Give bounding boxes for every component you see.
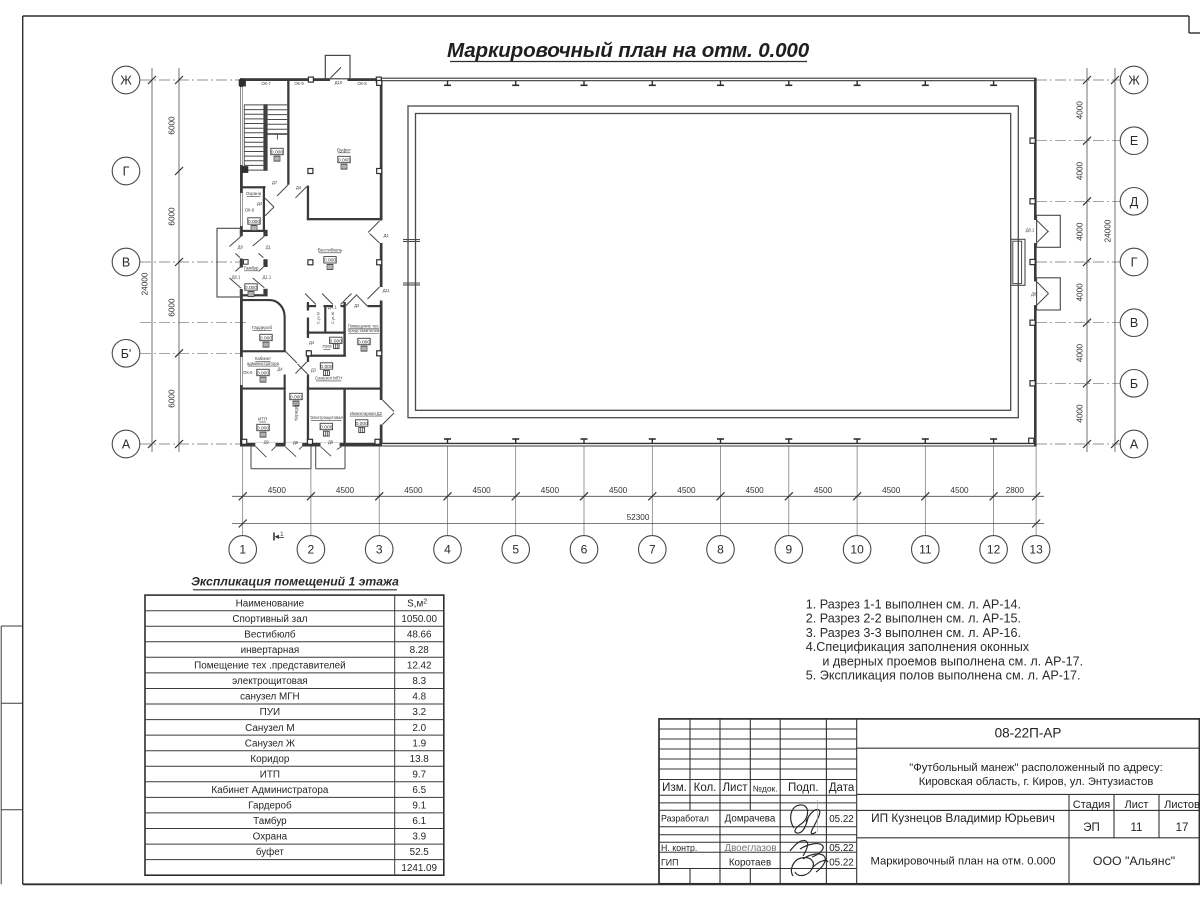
svg-text:ИТП: ИТП <box>260 769 280 780</box>
svg-text:Помещение тех .представителей: Помещение тех .представителей <box>194 661 346 672</box>
svg-text:4500: 4500 <box>472 486 491 495</box>
svg-text:Изм.: Изм. <box>662 782 687 794</box>
svg-text:Д8.1: Д8.1 <box>1026 228 1035 233</box>
svg-text:0.000: 0.000 <box>271 149 284 155</box>
svg-text:ОК-9: ОК-9 <box>294 81 304 86</box>
svg-text:0.000: 0.000 <box>324 258 337 264</box>
svg-text:Охрана: Охрана <box>253 832 288 843</box>
svg-text:Ж: Ж <box>120 74 132 88</box>
svg-text:Гардероб: Гардероб <box>252 325 273 330</box>
svg-text:4.8: 4.8 <box>412 692 426 703</box>
svg-text:1: 1 <box>239 543 246 557</box>
svg-text:Е: Е <box>1130 134 1138 148</box>
svg-text:Б: Б <box>1130 377 1138 391</box>
svg-text:4500: 4500 <box>745 486 764 495</box>
svg-text:Тамбур: Тамбур <box>244 266 259 271</box>
svg-text:ОК-6: ОК-6 <box>243 370 253 375</box>
svg-text:Спортивный зал: Спортивный зал <box>232 614 307 625</box>
svg-text:Инвентарная Д2: Инвентарная Д2 <box>350 411 383 416</box>
svg-text:Д4: Д4 <box>257 201 263 206</box>
svg-text:Д: Д <box>1130 195 1139 209</box>
svg-text:Д1: Д1 <box>384 233 390 238</box>
svg-text:4.Спецификация заполнения окон: 4.Спецификация заполнения оконных <box>806 640 1030 654</box>
svg-text:12: 12 <box>987 543 1001 557</box>
svg-text:Охрана: Охрана <box>246 191 262 196</box>
svg-text:Коротаев: Коротаев <box>729 857 771 868</box>
svg-text:ОК-6: ОК-6 <box>245 207 255 212</box>
svg-text:6.5: 6.5 <box>412 785 426 796</box>
svg-text:Д7: Д7 <box>272 180 278 185</box>
svg-text:Б': Б' <box>121 347 132 361</box>
svg-text:4500: 4500 <box>677 486 696 495</box>
svg-text:0.000: 0.000 <box>245 285 258 291</box>
svg-text:администратора: администратора <box>247 361 280 366</box>
svg-text:Д8: Д8 <box>238 245 244 250</box>
svg-text:№док.: №док. <box>753 784 778 794</box>
svg-text:4500: 4500 <box>541 486 560 495</box>
svg-text:С.уз М: С.уз М <box>316 312 321 324</box>
svg-text:9.7: 9.7 <box>412 769 426 780</box>
svg-text:Д4: Д4 <box>296 185 302 190</box>
svg-text:Д1.1: Д1.1 <box>263 274 272 279</box>
svg-text:1. Разрез 1-1 выполнен см. л.: 1. Разрез 1-1 выполнен см. л. АР-14. <box>806 597 1021 611</box>
svg-text:1241.09: 1241.09 <box>401 863 437 874</box>
svg-text:4500: 4500 <box>882 486 901 495</box>
svg-text:2.0: 2.0 <box>412 723 426 734</box>
svg-text:8.28: 8.28 <box>410 645 430 656</box>
svg-text:Д3: Д3 <box>311 368 317 373</box>
svg-text:0.000: 0.000 <box>257 370 270 376</box>
svg-text:Гардероб: Гардероб <box>248 801 292 812</box>
svg-text:Д4.1: Д4.1 <box>328 305 337 310</box>
svg-text:представителей: представителей <box>348 328 380 333</box>
svg-text:3.2: 3.2 <box>412 707 426 718</box>
svg-text:48.66: 48.66 <box>407 629 432 640</box>
svg-text:электрощитовая: электрощитовая <box>232 676 308 687</box>
svg-text:Маркировочный план на отм. 0.0: Маркировочный план на отм. 0.000 <box>870 856 1055 868</box>
svg-text:13: 13 <box>1029 543 1043 557</box>
svg-text:6000: 6000 <box>168 298 177 317</box>
svg-text:05.22: 05.22 <box>829 858 854 869</box>
svg-text:Д2: Д2 <box>354 303 360 308</box>
svg-text:Д8: Д8 <box>1031 291 1037 296</box>
svg-text:Д9: Д9 <box>264 440 270 445</box>
svg-text:Д6: Д6 <box>293 440 299 445</box>
svg-text:1050.00: 1050.00 <box>401 614 437 625</box>
svg-text:4500: 4500 <box>268 486 287 495</box>
svg-text:4000: 4000 <box>1076 343 1085 362</box>
svg-text:ИТП: ИТП <box>258 417 267 422</box>
svg-text:13.8: 13.8 <box>410 754 430 765</box>
svg-text:4000: 4000 <box>1076 161 1085 180</box>
svg-text:0.000: 0.000 <box>248 219 261 225</box>
svg-text:Санузел Ж: Санузел Ж <box>245 738 295 749</box>
svg-text:08-22П-АР: 08-22П-АР <box>995 726 1062 741</box>
svg-text:4000: 4000 <box>1076 222 1085 241</box>
svg-text:6: 6 <box>581 543 588 557</box>
svg-text:0.000: 0.000 <box>338 157 351 163</box>
svg-text:ГИП: ГИП <box>661 857 678 867</box>
svg-text:6.1: 6.1 <box>412 816 426 827</box>
svg-text:Д9: Д9 <box>328 440 334 445</box>
svg-text:3.9: 3.9 <box>412 832 426 843</box>
svg-text:Дата: Дата <box>829 782 855 794</box>
svg-text:9.1: 9.1 <box>412 801 426 812</box>
svg-text:4000: 4000 <box>1076 101 1085 120</box>
svg-text:ПУИ: ПУИ <box>322 344 331 349</box>
svg-text:Д8.1: Д8.1 <box>232 274 241 279</box>
svg-text:7: 7 <box>649 543 656 557</box>
svg-text:5. Экспликация полов выполнена: 5. Экспликация полов выполнена см. л. АР… <box>806 669 1081 683</box>
svg-text:9: 9 <box>785 543 792 557</box>
svg-text:Лист: Лист <box>1125 799 1149 811</box>
svg-text:Д4: Д4 <box>277 367 283 372</box>
svg-text:С.уз Ж: С.уз Ж <box>330 311 335 324</box>
svg-text:ОК-7: ОК-7 <box>261 81 271 86</box>
svg-text:52300: 52300 <box>627 513 650 522</box>
svg-text:10: 10 <box>850 543 864 557</box>
svg-text:инвертарная: инвертарная <box>241 645 300 656</box>
svg-text:6000: 6000 <box>168 389 177 408</box>
svg-text:52.5: 52.5 <box>410 847 430 858</box>
svg-text:05.22: 05.22 <box>829 814 854 825</box>
svg-text:0.000: 0.000 <box>290 394 303 400</box>
svg-text:ООО "Альянс": ООО "Альянс" <box>1093 854 1175 868</box>
svg-text:4500: 4500 <box>814 486 833 495</box>
svg-text:1: 1 <box>280 531 284 538</box>
svg-text:Вестибюлб: Вестибюлб <box>244 629 296 640</box>
svg-text:ОК-8: ОК-8 <box>357 81 367 86</box>
svg-text:Д10: Д10 <box>335 80 343 85</box>
svg-text:"Футбольный манеж" расположенн: "Футбольный манеж" расположенный по адре… <box>909 762 1162 774</box>
svg-text:Коридор: Коридор <box>250 754 290 765</box>
svg-text:2. Разрез 2-2 выполнен см. л.: 2. Разрез 2-2 выполнен см. л. АР-15. <box>806 612 1021 626</box>
svg-text:В: В <box>122 256 130 270</box>
svg-text:Кол.: Кол. <box>694 782 717 794</box>
svg-text:санузел МГН: санузел МГН <box>240 692 300 703</box>
svg-text:4: 4 <box>444 543 451 557</box>
svg-text:и дверных проемов выполнена см: и дверных проемов выполнена см. л. АР-17… <box>822 654 1083 668</box>
svg-text:А: А <box>122 438 131 452</box>
svg-text:Г: Г <box>123 165 130 179</box>
svg-text:Разработал: Разработал <box>661 814 709 824</box>
svg-text:Маркировочный план на отм. 0.0: Маркировочный план на отм. 0.000 <box>447 39 810 62</box>
svg-text:Д1: Д1 <box>266 245 272 250</box>
svg-text:Экспликация помещений 1 этажа: Экспликация помещений 1 этажа <box>191 575 399 589</box>
svg-text:Д11: Д11 <box>383 288 391 293</box>
svg-text:Листов: Листов <box>1164 799 1200 811</box>
svg-text:Домрачева: Домрачева <box>725 814 776 825</box>
svg-text:24000: 24000 <box>141 272 150 295</box>
svg-text:Двоеглазов: Двоеглазов <box>724 843 776 854</box>
svg-text:0.000: 0.000 <box>320 364 333 370</box>
svg-text:Д4: Д4 <box>309 340 315 345</box>
svg-text:Лист: Лист <box>723 782 749 794</box>
svg-text:Кабинет Администратора: Кабинет Администратора <box>211 785 329 796</box>
svg-text:Кировская область, г. Киров, у: Кировская область, г. Киров, ул. Энтузиа… <box>919 776 1154 788</box>
svg-text:ИП Кузнецов Владимир Юрьевич: ИП Кузнецов Владимир Юрьевич <box>871 811 1055 825</box>
svg-text:0.000: 0.000 <box>358 339 371 345</box>
svg-text:4000: 4000 <box>1076 404 1085 423</box>
svg-text:4000: 4000 <box>1076 283 1085 302</box>
svg-text:Ж: Ж <box>1128 74 1140 88</box>
svg-text:Коридор: Коридор <box>294 403 299 421</box>
svg-text:Стадия: Стадия <box>1073 799 1111 811</box>
svg-text:11: 11 <box>919 543 932 557</box>
svg-text:5: 5 <box>512 543 519 557</box>
svg-text:0.000: 0.000 <box>320 424 333 430</box>
svg-text:3: 3 <box>376 543 383 557</box>
svg-text:ПУИ: ПУИ <box>260 707 280 718</box>
svg-text:17: 17 <box>1176 822 1189 834</box>
svg-text:В: В <box>1130 316 1138 330</box>
svg-text:1.9: 1.9 <box>412 738 426 749</box>
svg-text:6000: 6000 <box>168 116 177 135</box>
svg-text:4500: 4500 <box>609 486 628 495</box>
svg-text:Тамбур: Тамбур <box>253 816 287 827</box>
svg-text:0.000: 0.000 <box>257 425 270 431</box>
svg-text:05.22: 05.22 <box>829 843 854 854</box>
svg-text:Электрощитовая: Электрощитовая <box>310 415 343 420</box>
svg-text:8: 8 <box>717 543 724 557</box>
svg-text:А: А <box>1130 438 1139 452</box>
svg-text:12.42: 12.42 <box>407 661 432 672</box>
svg-text:Н. контр.: Н. контр. <box>661 843 697 853</box>
svg-text:8.3: 8.3 <box>412 676 426 687</box>
svg-text:ЭП: ЭП <box>1083 822 1100 834</box>
svg-text:Санузел МГН: Санузел МГН <box>315 376 343 381</box>
svg-text:2800: 2800 <box>1006 486 1025 495</box>
svg-text:11: 11 <box>1131 822 1143 834</box>
svg-text:0.000: 0.000 <box>260 335 273 341</box>
svg-text:Подп.: Подп. <box>788 782 819 794</box>
svg-text:Санузел М: Санузел М <box>245 723 294 734</box>
svg-text:4500: 4500 <box>404 486 423 495</box>
svg-text:6000: 6000 <box>168 207 177 226</box>
svg-text:2: 2 <box>308 543 315 557</box>
svg-text:4500: 4500 <box>336 486 355 495</box>
svg-text:Г: Г <box>1131 256 1138 270</box>
svg-text:Наименование: Наименование <box>236 598 305 609</box>
svg-text:буфет: буфет <box>256 847 285 858</box>
svg-text:3. Разрез 3-3 выполнен см. л.: 3. Разрез 3-3 выполнен см. л. АР-16. <box>806 626 1021 640</box>
svg-text:24000: 24000 <box>1104 219 1113 242</box>
svg-text:0.000: 0.000 <box>356 421 369 427</box>
svg-text:4500: 4500 <box>950 486 969 495</box>
